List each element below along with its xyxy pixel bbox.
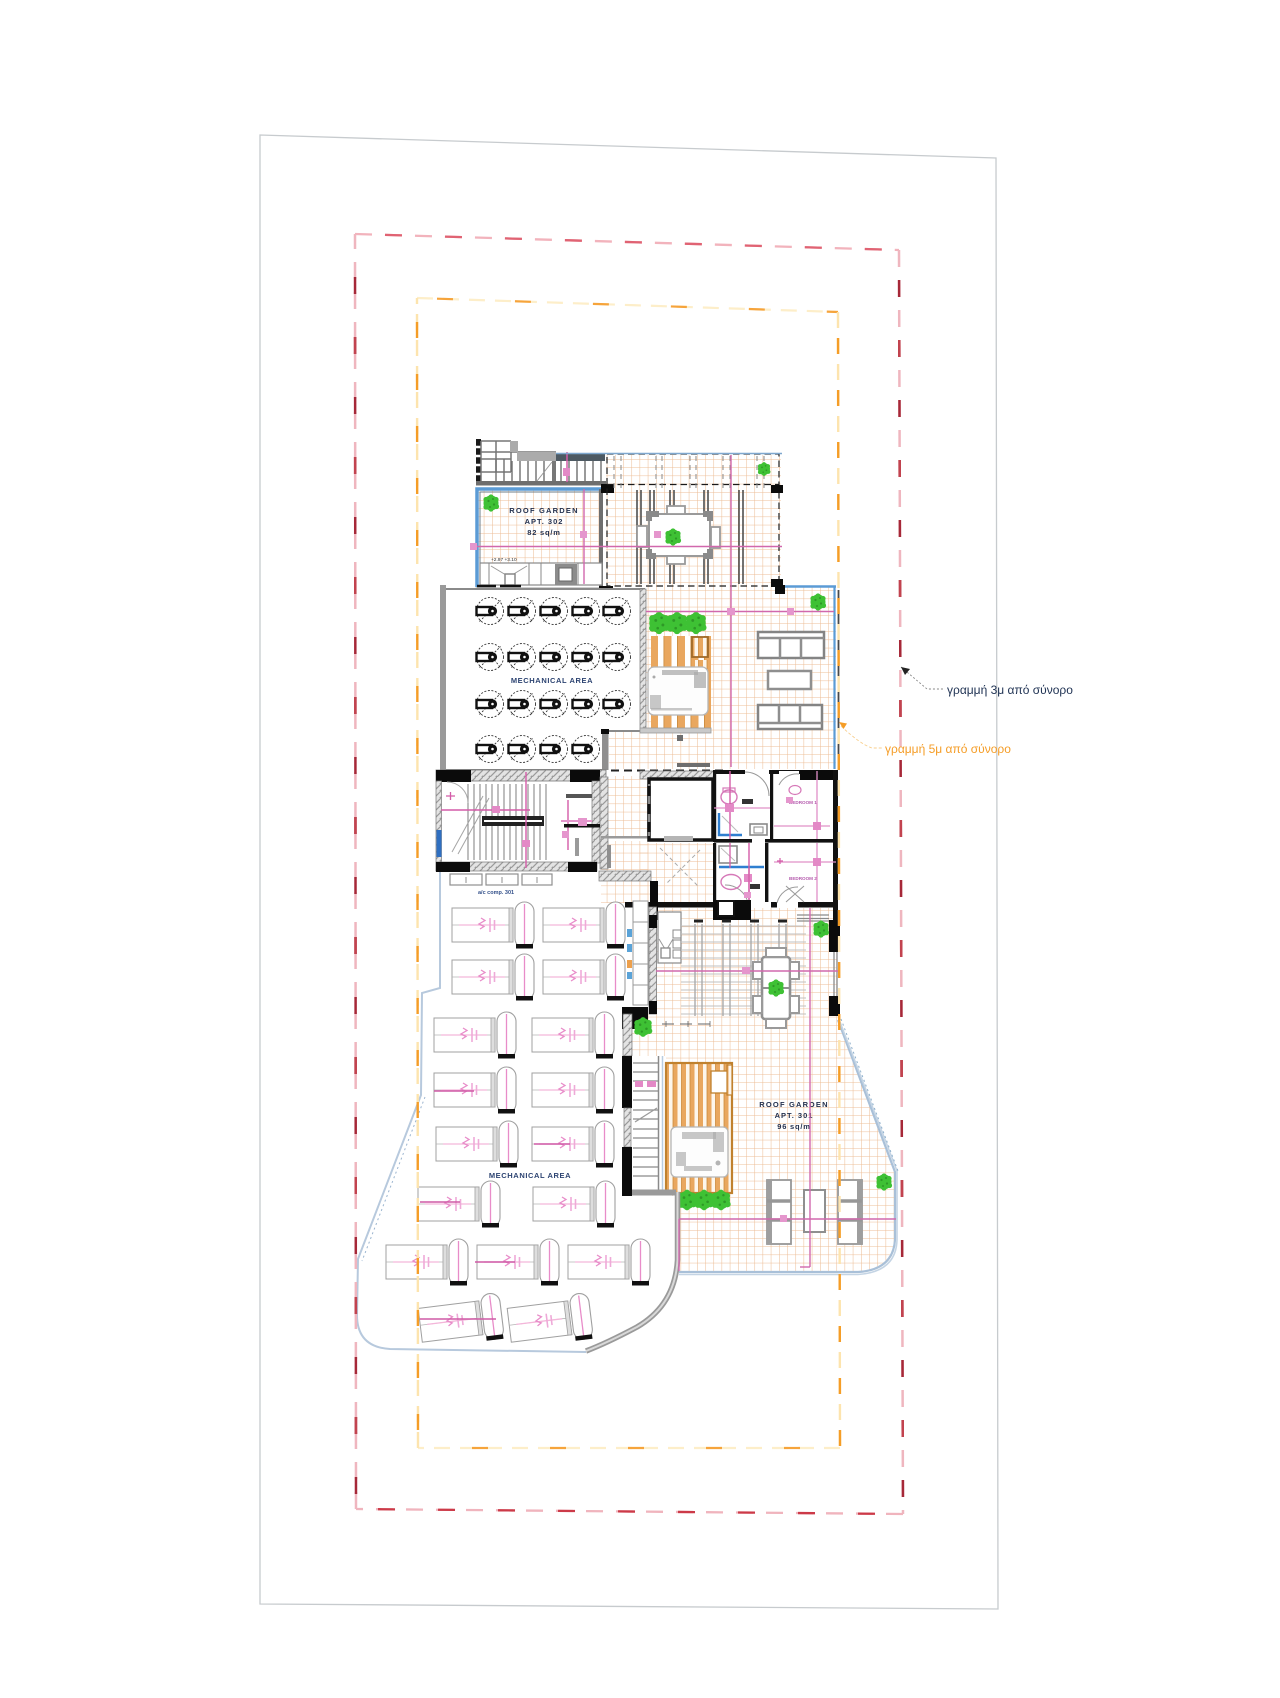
svg-text:ROOF GARDEN: ROOF GARDEN (759, 1100, 828, 1109)
svg-text:γραμμή 3μ από σύνορο: γραμμή 3μ από σύνορο (947, 683, 1073, 697)
svg-text:MECHANICAL AREA: MECHANICAL AREA (489, 1171, 571, 1180)
svg-text:96 sq/m: 96 sq/m (777, 1122, 811, 1131)
svg-text:γραμμή 5μ από σύνορο: γραμμή 5μ από σύνορο (885, 742, 1011, 756)
svg-text:+2.97 +3.10: +2.97 +3.10 (491, 557, 517, 563)
svg-text:APT. 301: APT. 301 (775, 1111, 814, 1120)
svg-text:MECHANICAL AREA: MECHANICAL AREA (511, 676, 593, 685)
svg-text:82 sq/m: 82 sq/m (527, 528, 561, 537)
svg-text:APT. 302: APT. 302 (525, 517, 564, 526)
svg-text:BEDROOM 1: BEDROOM 1 (789, 800, 817, 805)
svg-text:a/c comp. 301: a/c comp. 301 (478, 890, 514, 896)
svg-text:ROOF GARDEN: ROOF GARDEN (509, 506, 578, 515)
svg-text:BEDROOM 2: BEDROOM 2 (789, 876, 817, 881)
